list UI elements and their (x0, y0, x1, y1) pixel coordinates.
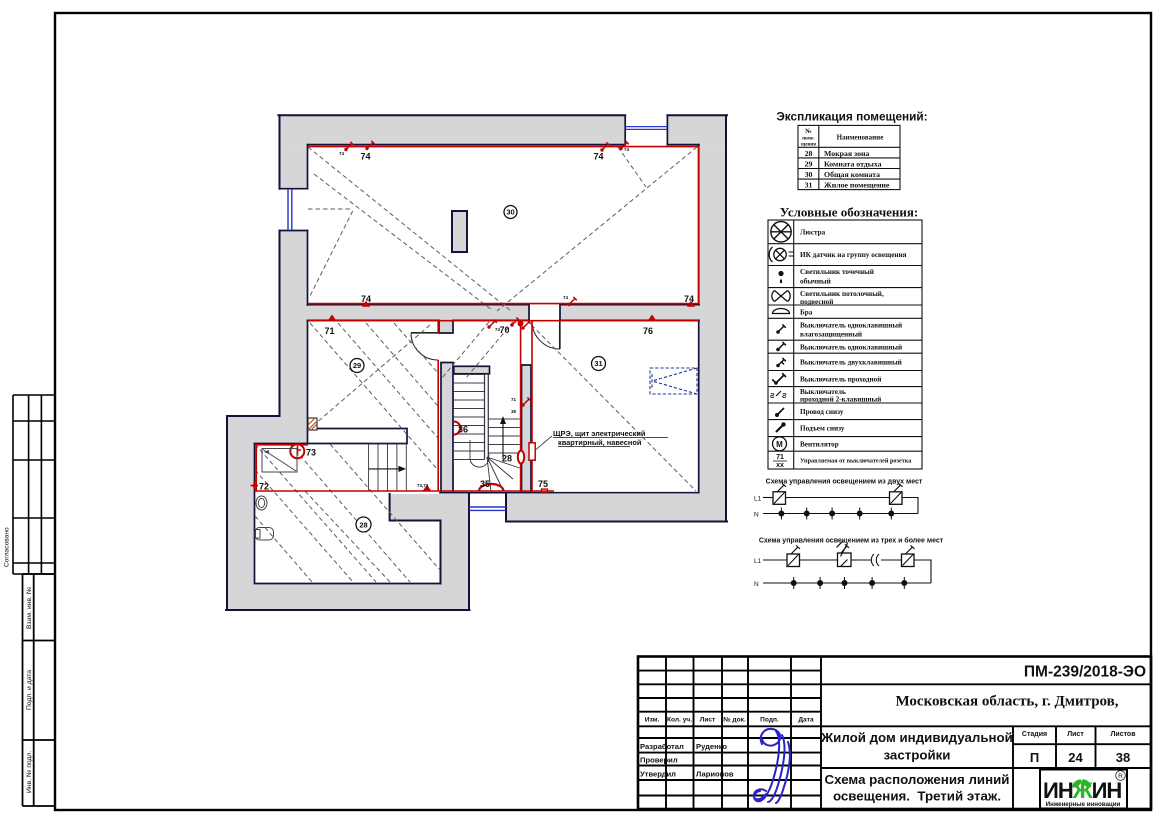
svg-text:квартирный, навесной: квартирный, навесной (558, 438, 642, 447)
svg-text:освещения. Третий этаж.: освещения. Третий этаж. (833, 789, 1001, 804)
svg-text:73,73: 73,73 (417, 483, 429, 488)
svg-text:М: М (776, 440, 783, 449)
svg-text:28: 28 (359, 520, 367, 529)
svg-text:74: 74 (361, 151, 371, 161)
svg-text:Подъем снизу: Подъем снизу (800, 425, 845, 433)
svg-text:Ларионов: Ларионов (696, 770, 734, 779)
svg-text:Руденко: Руденко (696, 742, 727, 751)
svg-text:75: 75 (538, 479, 548, 489)
svg-text:Управляемая от выключателей ро: Управляемая от выключателей розетка (800, 458, 911, 465)
svg-text:74: 74 (594, 151, 604, 161)
svg-text:73: 73 (306, 448, 316, 458)
svg-text:Общая комната: Общая комната (824, 170, 880, 179)
svg-text:31: 31 (805, 181, 813, 190)
svg-text:Жилой дом индивидуальной: Жилой дом индивидуальной (820, 730, 1013, 745)
svg-text:Люстра: Люстра (800, 229, 826, 237)
svg-text:Инженерные инновации: Инженерные инновации (1046, 801, 1121, 808)
svg-text:Изм.: Изм. (645, 717, 660, 724)
svg-text:Выключатель двухклавишный: Выключатель двухклавишный (800, 359, 902, 367)
svg-text:Выключатель одноклавишный: Выключатель одноклавишный (800, 322, 902, 330)
svg-text:Лист: Лист (700, 717, 716, 724)
svg-text:влагозащищенный: влагозащищенный (800, 331, 862, 339)
svg-text:Подп. и дата: Подп. и дата (26, 670, 33, 710)
svg-text:L1: L1 (754, 558, 762, 565)
svg-text:Мокрая зона: Мокрая зона (824, 149, 870, 158)
svg-text:№ док.: № док. (723, 717, 746, 724)
svg-text:Ƨ: Ƨ (782, 393, 787, 400)
svg-text:Провод снизу: Провод снизу (800, 408, 844, 416)
svg-text:74: 74 (684, 294, 694, 304)
svg-text:Взам. инв. №: Взам. инв. № (26, 587, 33, 629)
svg-text:Схема управления освещением из: Схема управления освещением из трех и бо… (759, 537, 944, 545)
svg-text:71: 71 (325, 326, 335, 336)
svg-text:Подп.: Подп. (760, 717, 779, 724)
svg-text:30: 30 (506, 208, 514, 217)
svg-text:щения: щения (801, 143, 816, 148)
svg-text:Светильник потолочный,: Светильник потолочный, (800, 290, 884, 298)
svg-text:Вентилятор: Вентилятор (800, 441, 839, 449)
svg-text:72: 72 (259, 482, 269, 492)
svg-text:38: 38 (1116, 750, 1130, 765)
svg-text:Проверил: Проверил (640, 756, 678, 765)
svg-text:ИК датчик на группу освещения: ИК датчик на группу освещения (800, 251, 907, 259)
svg-text:ЩРЭ, щит электрический: ЩРЭ, щит электрический (553, 429, 646, 438)
svg-text:71: 71 (776, 454, 784, 461)
svg-text:31: 31 (594, 359, 602, 368)
svg-text:Выключатель проходной: Выключатель проходной (800, 376, 881, 384)
svg-text:Экспликация помещений:: Экспликация помещений: (776, 110, 927, 124)
svg-text:24: 24 (1068, 750, 1083, 765)
svg-text:74: 74 (495, 327, 501, 332)
svg-text:П: П (1030, 750, 1039, 765)
svg-text:Разработал: Разработал (640, 742, 684, 751)
svg-text:Лист: Лист (1067, 731, 1084, 738)
svg-text:74: 74 (361, 294, 371, 304)
svg-text:Инв. № подл.: Инв. № подл. (26, 751, 33, 793)
svg-text:Листов: Листов (1110, 731, 1136, 738)
svg-text:76: 76 (643, 326, 653, 336)
svg-text:поме-: поме- (802, 137, 815, 142)
svg-text:Выключатель одноклавишный: Выключатель одноклавишный (800, 344, 902, 352)
svg-text:Московская область, г. Дмитров: Московская область, г. Дмитров, (895, 694, 1118, 710)
svg-text:74: 74 (624, 147, 630, 152)
svg-text:Условные обозначения:: Условные обозначения: (780, 205, 919, 220)
svg-text:Стадия: Стадия (1022, 731, 1047, 738)
svg-text:71: 71 (511, 397, 517, 402)
svg-text:Наименование: Наименование (837, 134, 884, 142)
svg-text:подвесной: подвесной (800, 298, 833, 306)
svg-text:38: 38 (511, 409, 517, 414)
svg-text:Бра: Бра (800, 309, 813, 317)
svg-text:хх: хх (776, 462, 784, 469)
svg-text:обычный: обычный (800, 278, 831, 286)
svg-text:Утвердил: Утвердил (640, 770, 676, 779)
svg-text:74: 74 (563, 295, 569, 300)
svg-text:29: 29 (353, 361, 361, 370)
svg-text:36: 36 (458, 425, 468, 435)
svg-text:Жилое помещение: Жилое помещение (824, 181, 890, 190)
svg-text:35: 35 (480, 479, 490, 489)
svg-text:74: 74 (339, 151, 345, 156)
svg-text:Ƨ: Ƨ (770, 393, 775, 400)
svg-text:L1: L1 (754, 496, 762, 503)
svg-text:N: N (754, 512, 759, 519)
svg-text:70: 70 (500, 325, 510, 335)
svg-text:ПМ-239/2018-ЭО: ПМ-239/2018-ЭО (1024, 664, 1146, 681)
svg-text:Схема расположения линий: Схема расположения линий (825, 772, 1010, 787)
svg-text:№: № (805, 128, 812, 135)
svg-text:Согласовано: Согласовано (4, 527, 11, 567)
svg-text:N: N (754, 581, 759, 588)
svg-text:Светильник точечный: Светильник точечный (800, 268, 874, 276)
svg-text:проходной 2-клавишный: проходной 2-клавишный (800, 396, 881, 404)
svg-text:29: 29 (805, 159, 813, 168)
svg-text:R: R (1118, 773, 1123, 780)
svg-text:Кол. уч.: Кол. уч. (667, 717, 692, 724)
svg-text:28: 28 (502, 454, 512, 464)
svg-text:28: 28 (805, 149, 813, 158)
svg-text:30: 30 (805, 170, 813, 179)
svg-text:застройки: застройки (884, 748, 951, 763)
svg-text:Комната отдыха: Комната отдыха (824, 159, 882, 168)
svg-text:Дата: Дата (798, 717, 814, 724)
